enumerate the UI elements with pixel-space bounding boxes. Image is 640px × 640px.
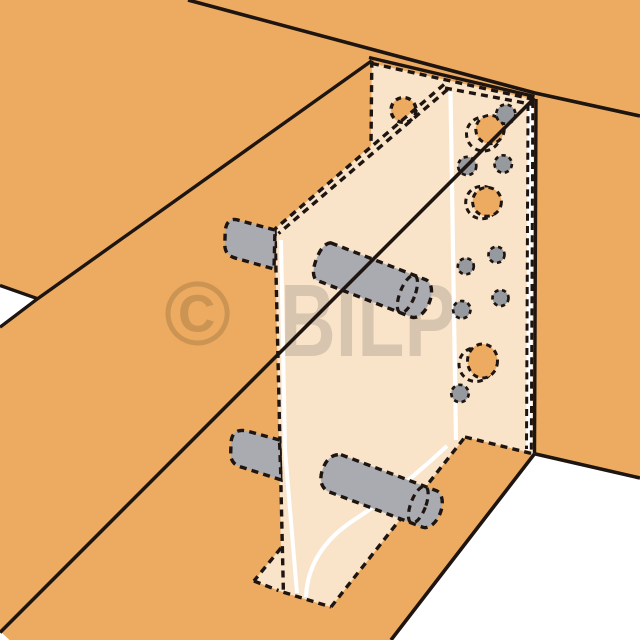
svg-text:©: © bbox=[164, 264, 231, 365]
